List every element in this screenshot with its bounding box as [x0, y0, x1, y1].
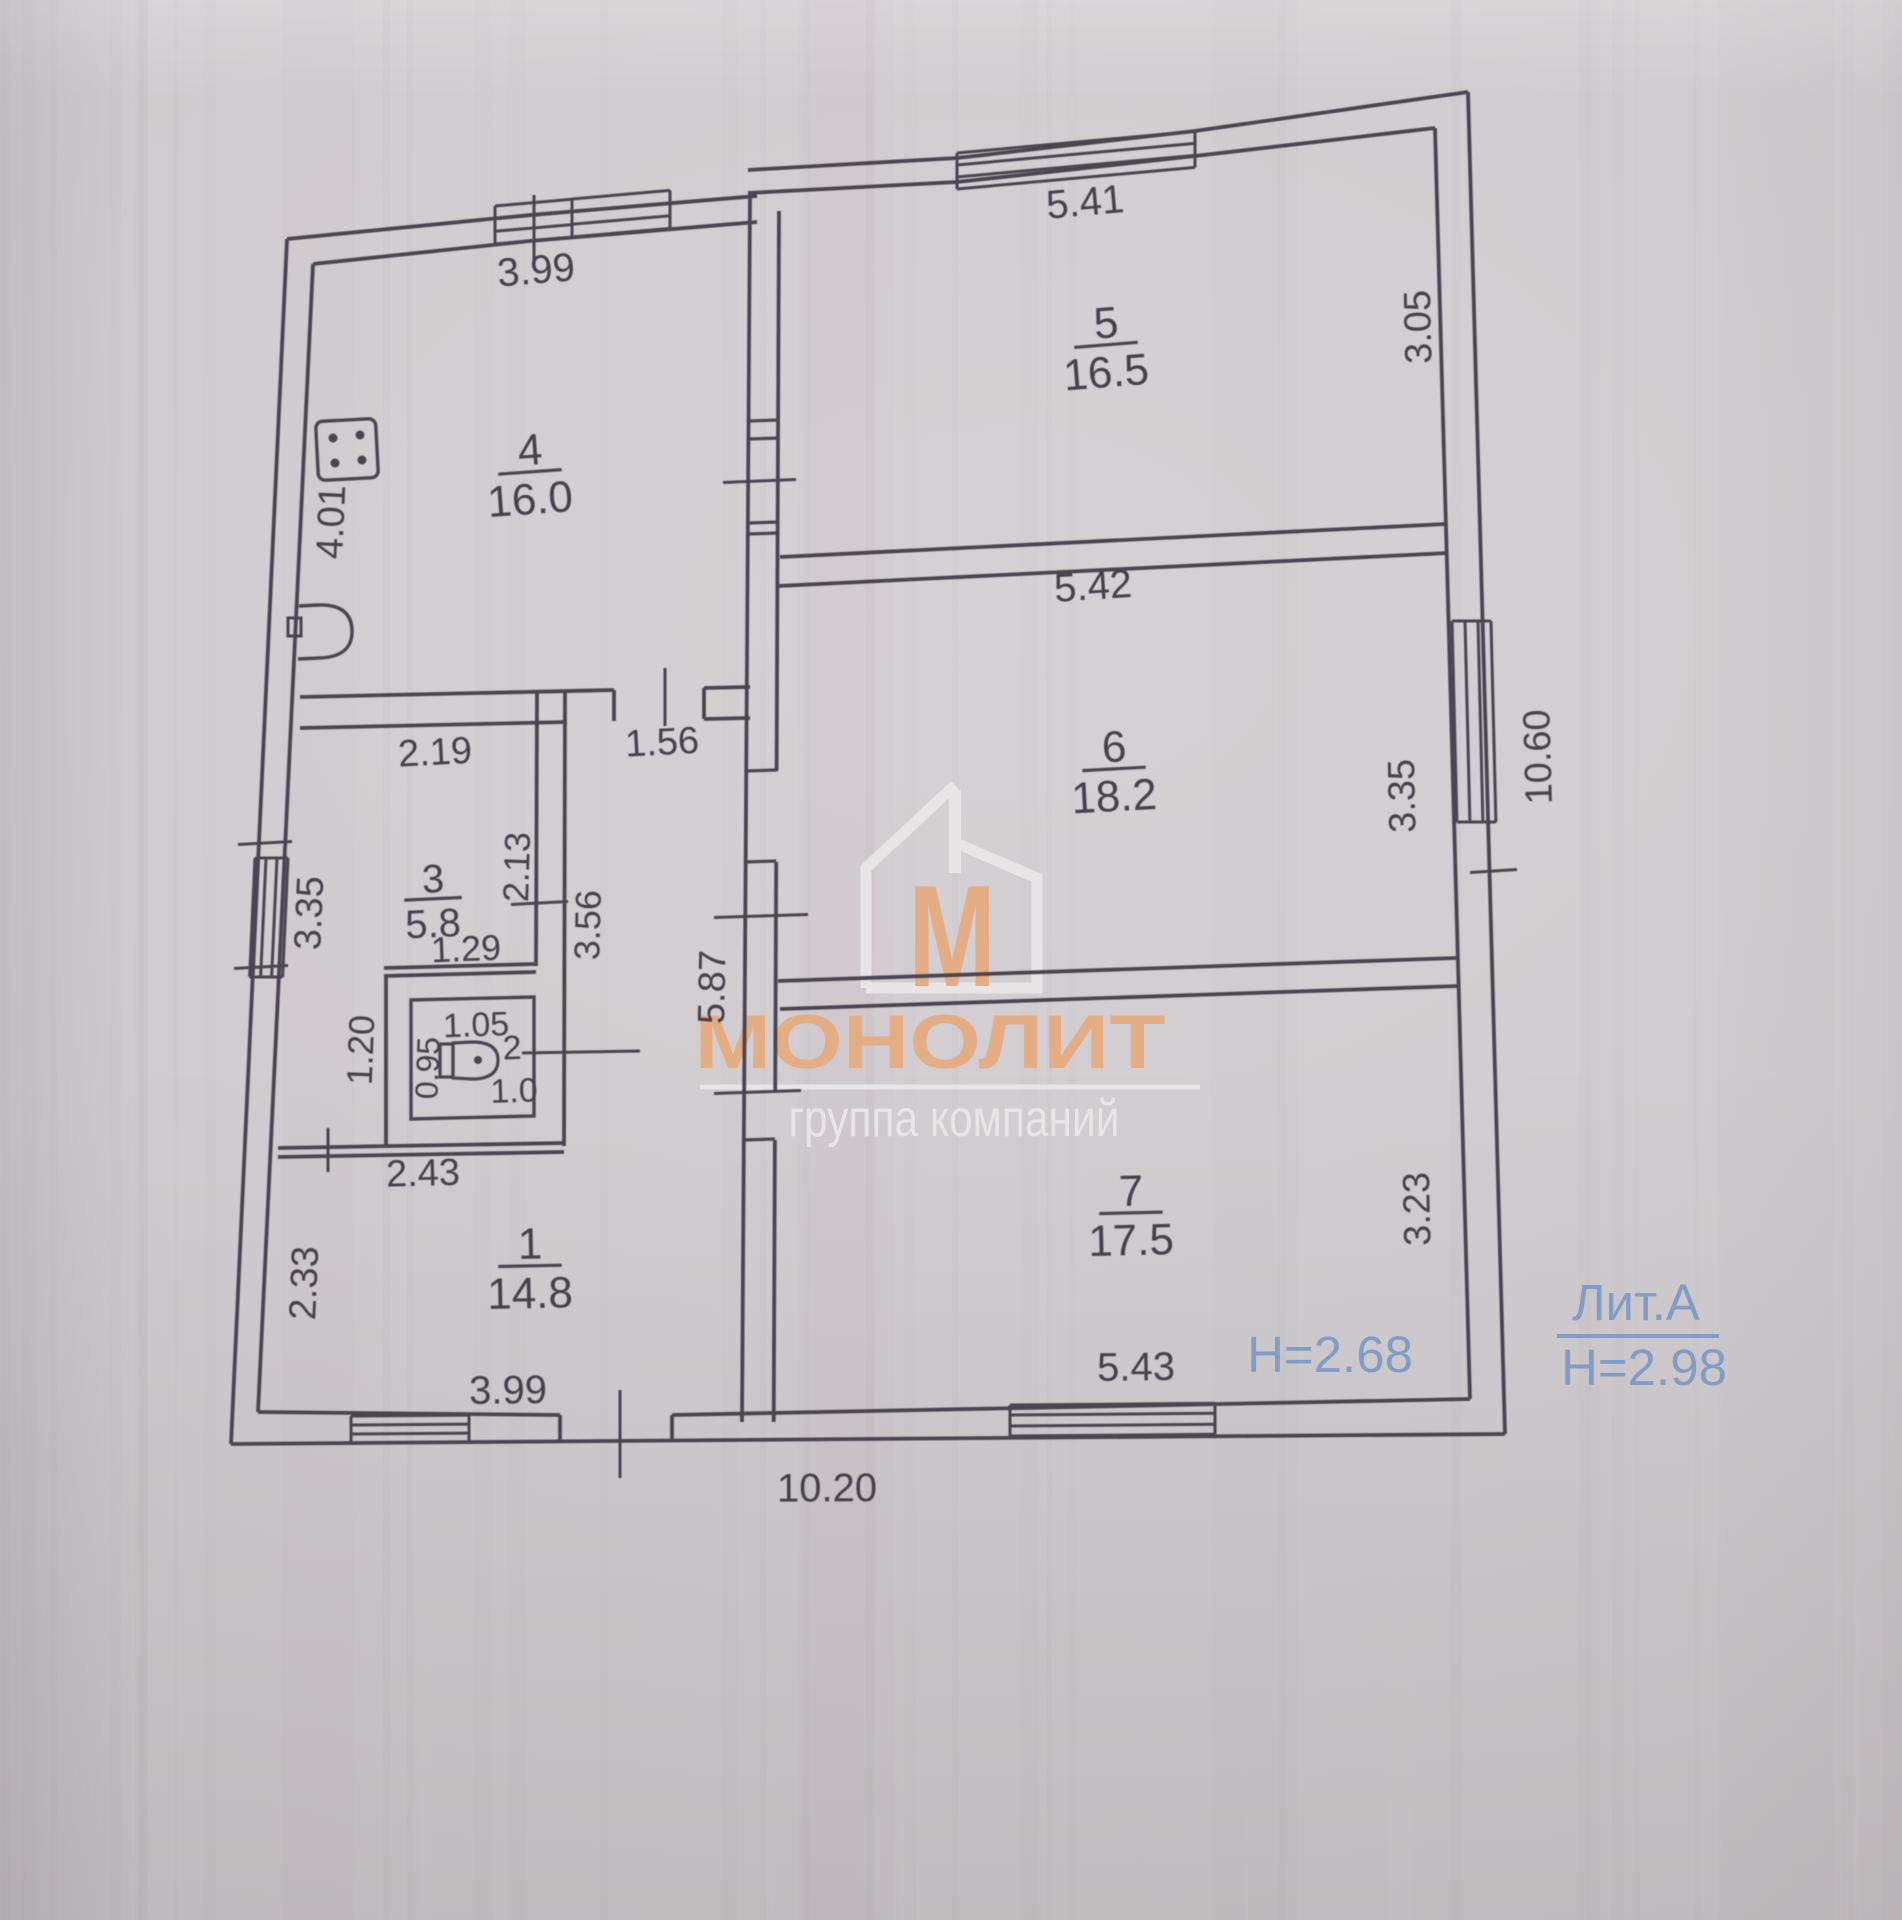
svg-text:3: 3: [421, 857, 445, 902]
svg-text:3.99: 3.99: [469, 1368, 547, 1413]
svg-text:10.60: 10.60: [1516, 709, 1561, 805]
svg-text:5.87: 5.87: [691, 950, 734, 1025]
svg-text:3.99: 3.99: [495, 245, 576, 295]
svg-text:1.56: 1.56: [624, 720, 700, 766]
svg-text:1.05: 1.05: [442, 1005, 509, 1045]
svg-text:3.05: 3.05: [1397, 290, 1441, 365]
svg-text:5.43: 5.43: [1097, 1345, 1175, 1390]
svg-text:М: М: [908, 855, 996, 1017]
svg-text:14.8: 14.8: [487, 1268, 574, 1319]
svg-text:2.33: 2.33: [282, 1245, 327, 1321]
svg-text:3.35: 3.35: [1381, 759, 1425, 834]
svg-text:18.2: 18.2: [1070, 770, 1158, 823]
svg-text:Н=2.68: Н=2.68: [1247, 1326, 1413, 1383]
svg-text:2.13: 2.13: [495, 831, 538, 902]
svg-text:10.20: 10.20: [777, 1466, 877, 1510]
svg-text:Н=2.98: Н=2.98: [1561, 1339, 1727, 1396]
svg-text:4: 4: [516, 425, 544, 476]
svg-text:5: 5: [1092, 298, 1120, 349]
svg-text:1.0: 1.0: [490, 1071, 538, 1110]
svg-text:5.41: 5.41: [1044, 177, 1125, 228]
svg-text:1.29: 1.29: [430, 927, 502, 971]
svg-text:Лит.А: Лит.А: [1572, 1274, 1700, 1331]
svg-text:16.5: 16.5: [1061, 345, 1150, 401]
svg-text:7: 7: [1118, 1167, 1144, 1217]
svg-text:16.0: 16.0: [486, 472, 575, 527]
svg-text:17.5: 17.5: [1088, 1215, 1175, 1266]
svg-text:6: 6: [1101, 722, 1128, 772]
svg-text:0.95: 0.95: [408, 1036, 446, 1100]
svg-text:4.01: 4.01: [309, 484, 354, 560]
svg-text:3.35: 3.35: [287, 875, 332, 951]
svg-text:группа компаний: группа компаний: [789, 1090, 1120, 1148]
svg-text:3.23: 3.23: [1396, 1172, 1440, 1247]
svg-text:5.42: 5.42: [1053, 562, 1133, 611]
svg-text:3.56: 3.56: [566, 889, 609, 960]
svg-text:1.20: 1.20: [339, 1014, 383, 1086]
svg-text:2.43: 2.43: [386, 1152, 461, 1196]
svg-text:МОНОЛИТ: МОНОЛИТ: [695, 1000, 1166, 1085]
svg-text:1: 1: [517, 1220, 542, 1269]
svg-text:2.19: 2.19: [397, 730, 473, 776]
